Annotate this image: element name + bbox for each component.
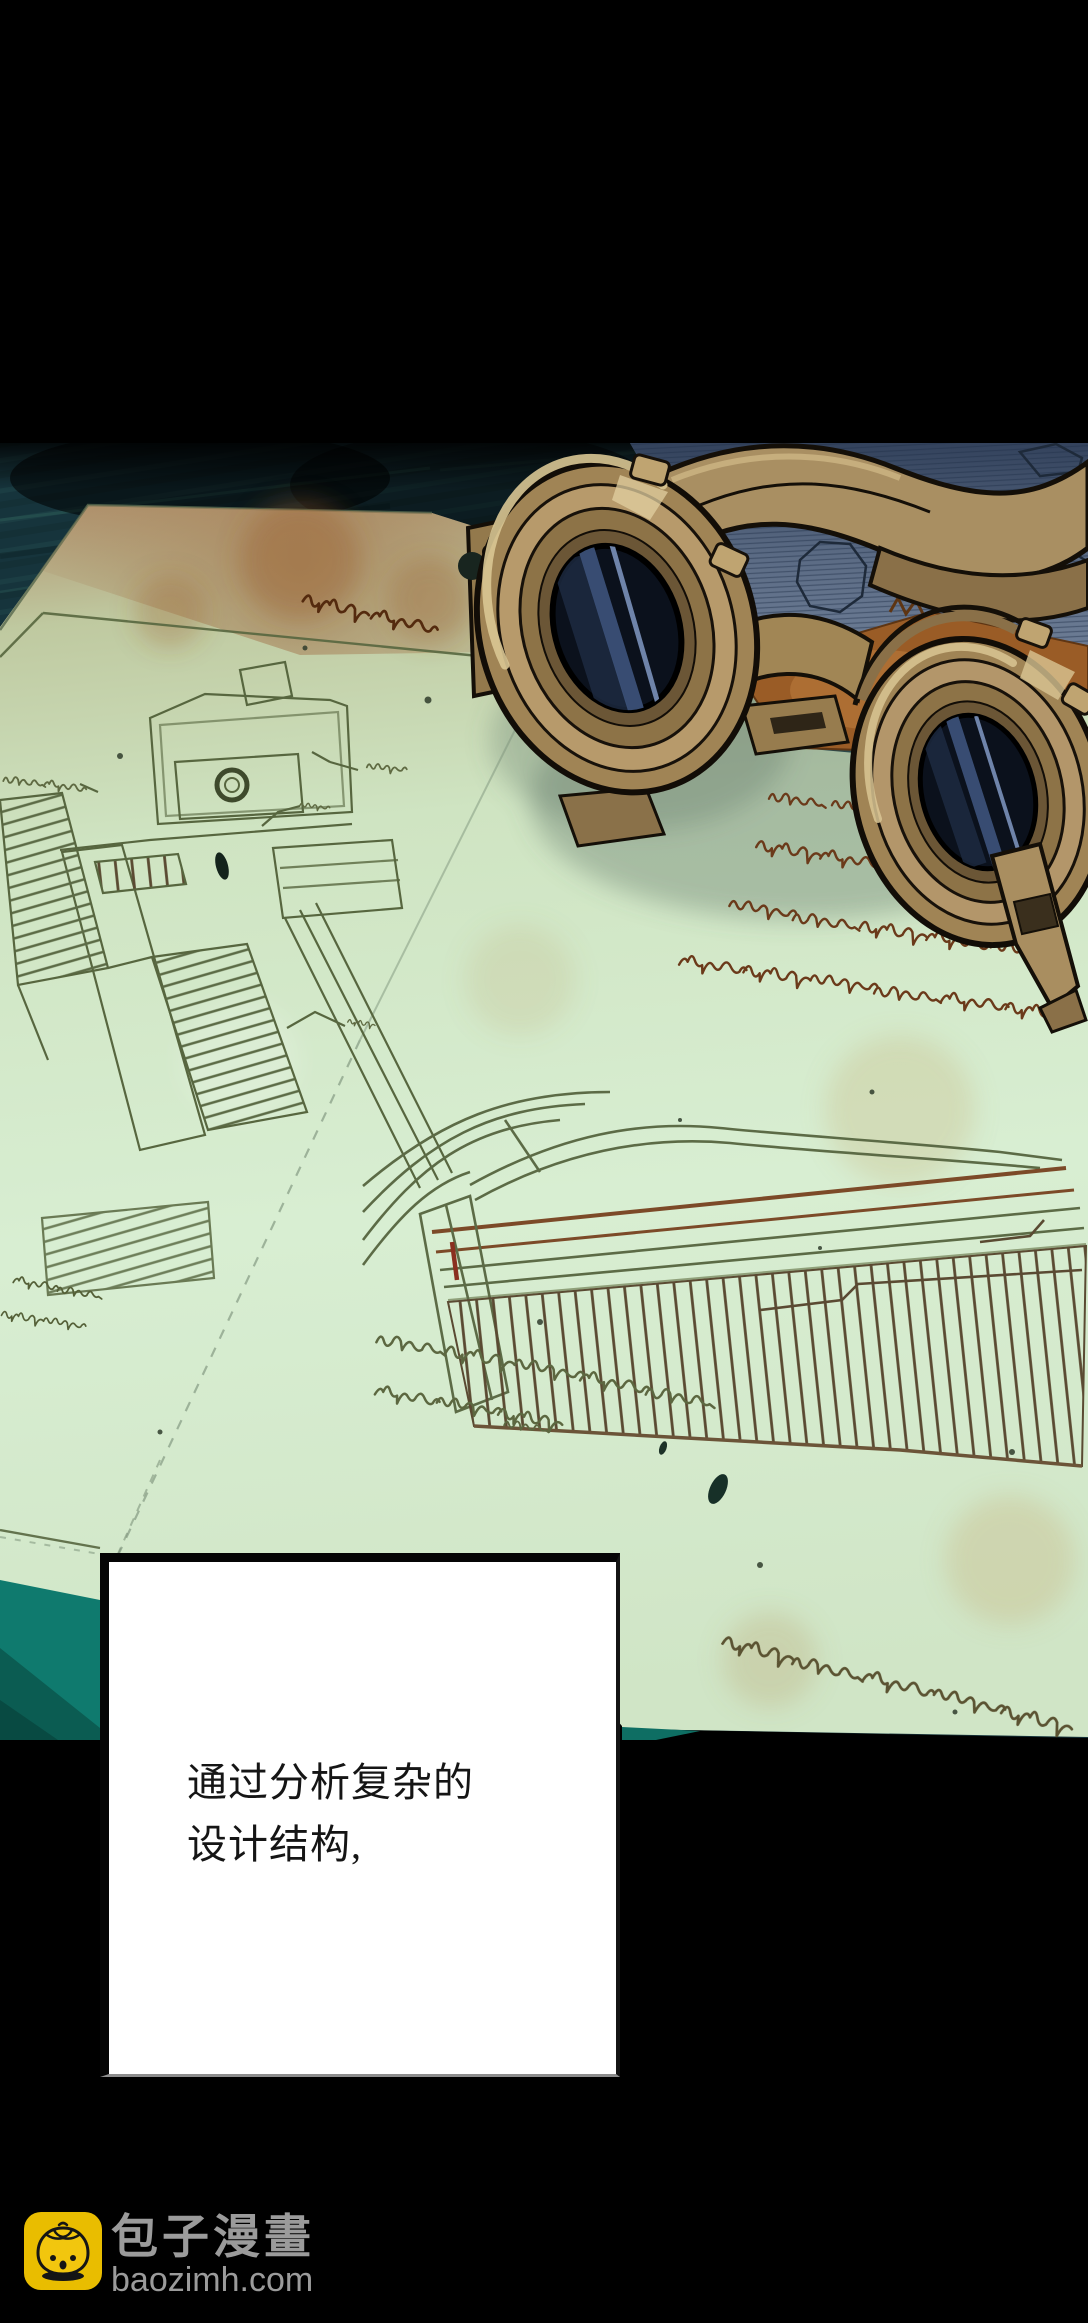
dialogue-line-2: 设计结构,	[187, 1814, 616, 1876]
comic-page: 通过分析复杂的 设计结构, 包子漫畫 baozimh.com	[0, 0, 1088, 2323]
dialogue-box: 通过分析复杂的 设计结构,	[100, 1553, 620, 2077]
baozi-bun-icon	[24, 2212, 102, 2290]
dialogue-line-1: 通过分析复杂的	[187, 1752, 616, 1814]
watermark-site-url: baozimh.com	[111, 2262, 315, 2298]
site-watermark: 包子漫畫 baozimh.com	[24, 2212, 315, 2298]
dialogue-text: 通过分析复杂的 设计结构,	[109, 1562, 616, 1876]
watermark-site-name: 包子漫畫	[111, 2212, 315, 2262]
top-letterbox	[0, 0, 1088, 443]
